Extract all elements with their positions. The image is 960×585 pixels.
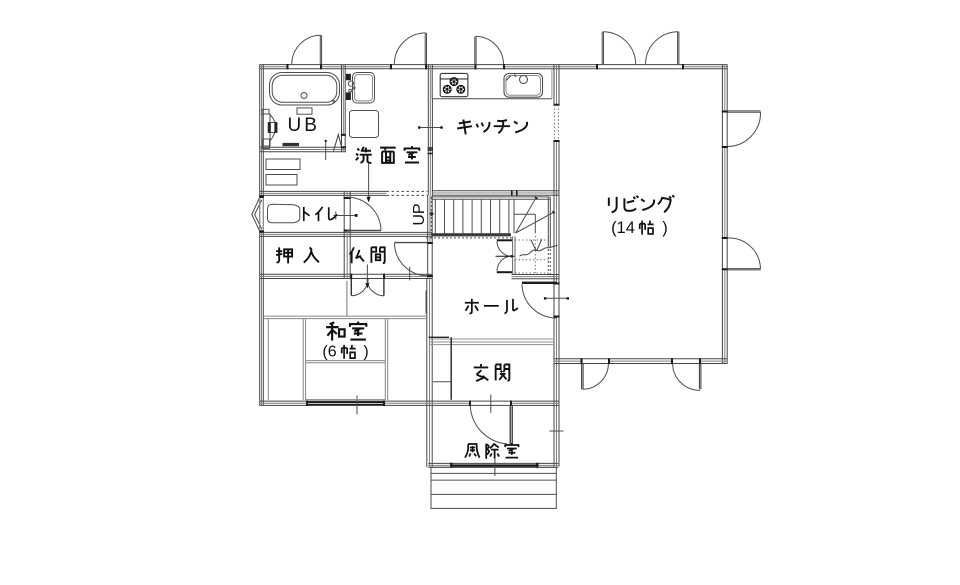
svg-text:(14: (14 — [611, 219, 635, 237]
svg-text:UB: UB — [287, 115, 319, 136]
svg-text:): ) — [662, 219, 668, 237]
svg-text:UP: UP — [411, 203, 428, 225]
svg-text:): ) — [363, 343, 368, 360]
svg-text:(6: (6 — [322, 343, 336, 360]
